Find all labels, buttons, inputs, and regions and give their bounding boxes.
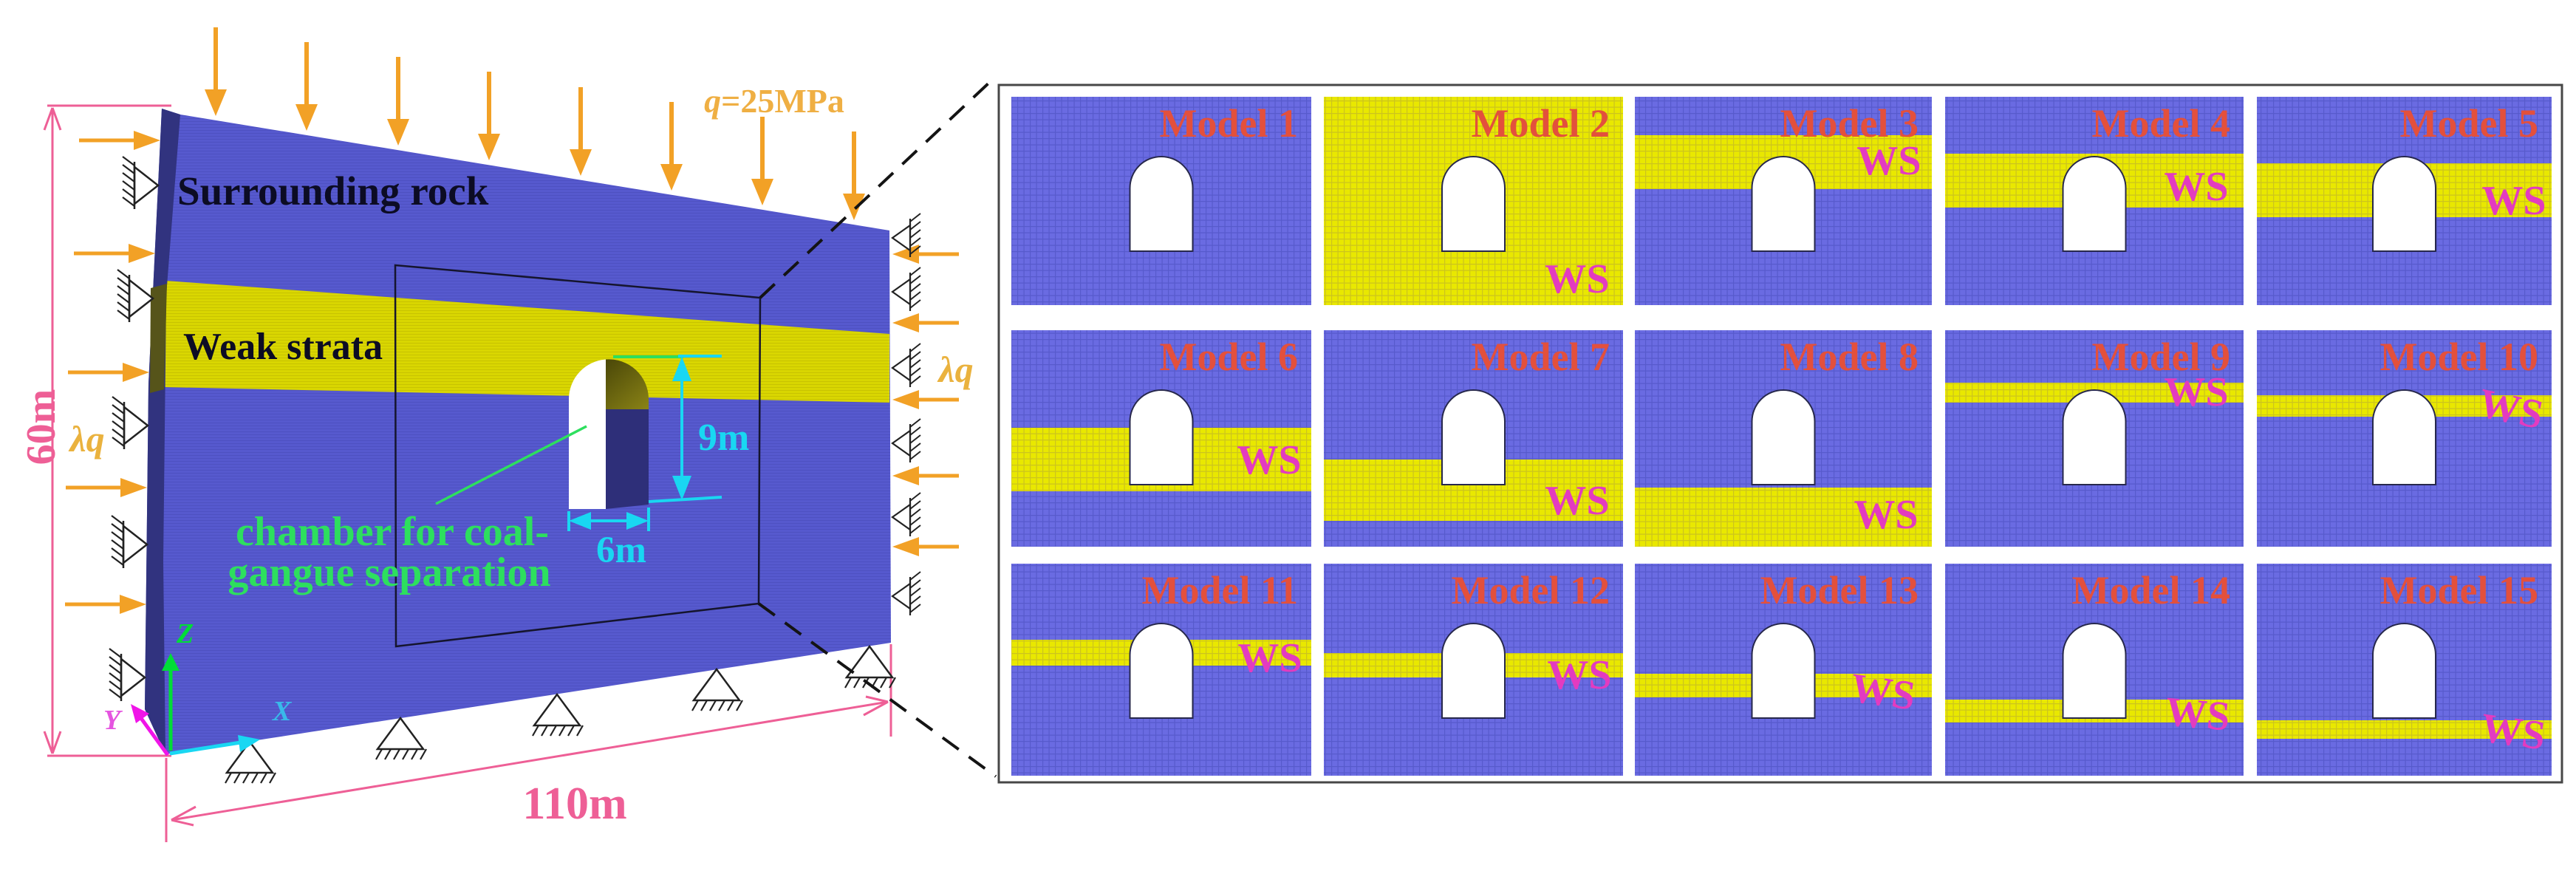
svg-text:Y: Y — [103, 705, 123, 736]
svg-text:Model 14: Model 14 — [2072, 568, 2230, 612]
svg-text:Surrounding rock: Surrounding rock — [177, 168, 489, 214]
svg-text:chamber for coal-: chamber for coal- — [236, 509, 549, 555]
svg-text:Model 13: Model 13 — [1760, 568, 1919, 612]
svg-text:Weak strata: Weak strata — [183, 326, 383, 368]
svg-text:λq: λq — [68, 418, 104, 460]
svg-text:Model 1: Model 1 — [1160, 101, 1298, 146]
svg-text:Model 7: Model 7 — [1472, 335, 1610, 379]
svg-text:X: X — [272, 696, 293, 727]
svg-text:WS: WS — [1547, 652, 1611, 698]
svg-text:gangue separation: gangue separation — [228, 550, 550, 595]
svg-text:Z: Z — [176, 618, 194, 649]
svg-text:9m: 9m — [698, 417, 749, 459]
svg-text:WS: WS — [1545, 256, 1609, 302]
svg-text:Model 6: Model 6 — [1160, 335, 1298, 379]
svg-text:WS: WS — [1545, 478, 1609, 524]
svg-text:Model 4: Model 4 — [2092, 101, 2230, 146]
svg-text:WS: WS — [1856, 138, 1921, 184]
svg-text:Model 15: Model 15 — [2380, 568, 2538, 612]
svg-text:q=25MPa: q=25MPa — [704, 82, 844, 120]
svg-text:λq: λq — [937, 349, 973, 390]
svg-text:WS: WS — [2164, 689, 2232, 740]
svg-text:WS: WS — [2481, 178, 2546, 224]
svg-text:Model 11: Model 11 — [1142, 568, 1299, 612]
svg-text:Model 2: Model 2 — [1472, 101, 1610, 146]
svg-text:Model 12: Model 12 — [1452, 568, 1610, 612]
svg-text:110m: 110m — [522, 779, 626, 829]
svg-text:Model 10: Model 10 — [2380, 335, 2538, 379]
svg-text:WS: WS — [1237, 635, 1302, 681]
svg-text:60m: 60m — [18, 389, 64, 465]
svg-text:WS: WS — [2164, 164, 2228, 210]
svg-text:Model 5: Model 5 — [2400, 101, 2538, 146]
svg-text:WS: WS — [1848, 665, 1918, 720]
svg-text:WS: WS — [2164, 369, 2228, 415]
svg-text:WS: WS — [1237, 437, 1301, 483]
svg-text:6m: 6m — [596, 530, 646, 571]
svg-text:WS: WS — [2478, 705, 2548, 759]
svg-text:WS: WS — [1854, 492, 1918, 538]
svg-text:Model 8: Model 8 — [1780, 335, 1919, 379]
